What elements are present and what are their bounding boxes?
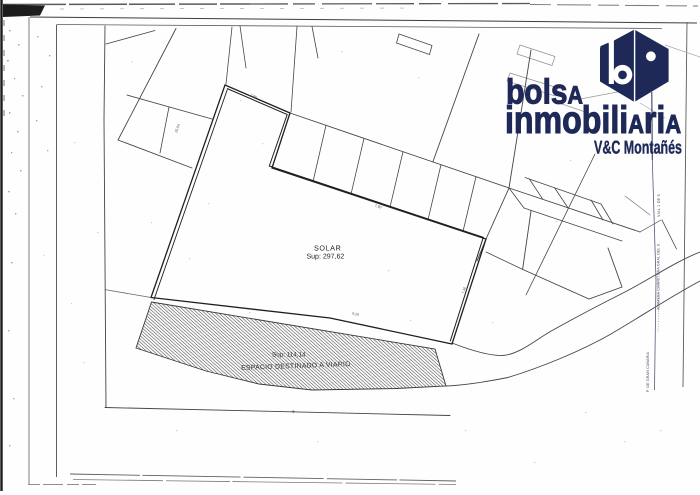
- svg-text:Sup: 297,62: Sup: 297,62: [307, 254, 345, 261]
- svg-text:ALAMEDA CARRETERA GRAL DEL S.: ALAMEDA CARRETERA GRAL DEL S.: [657, 243, 661, 310]
- svg-text:P. DE GRAN CANARIA: P. DE GRAN CANARIA: [646, 352, 650, 392]
- svg-text:VIAL 1 DE 5: VIAL 1 DE 5: [657, 194, 661, 217]
- svg-text:V&C Montañés: V&C Montañés: [594, 137, 682, 158]
- svg-text:SOLAR: SOLAR: [314, 244, 341, 253]
- svg-text:Sup: 114,14: Sup: 114,14: [272, 352, 306, 359]
